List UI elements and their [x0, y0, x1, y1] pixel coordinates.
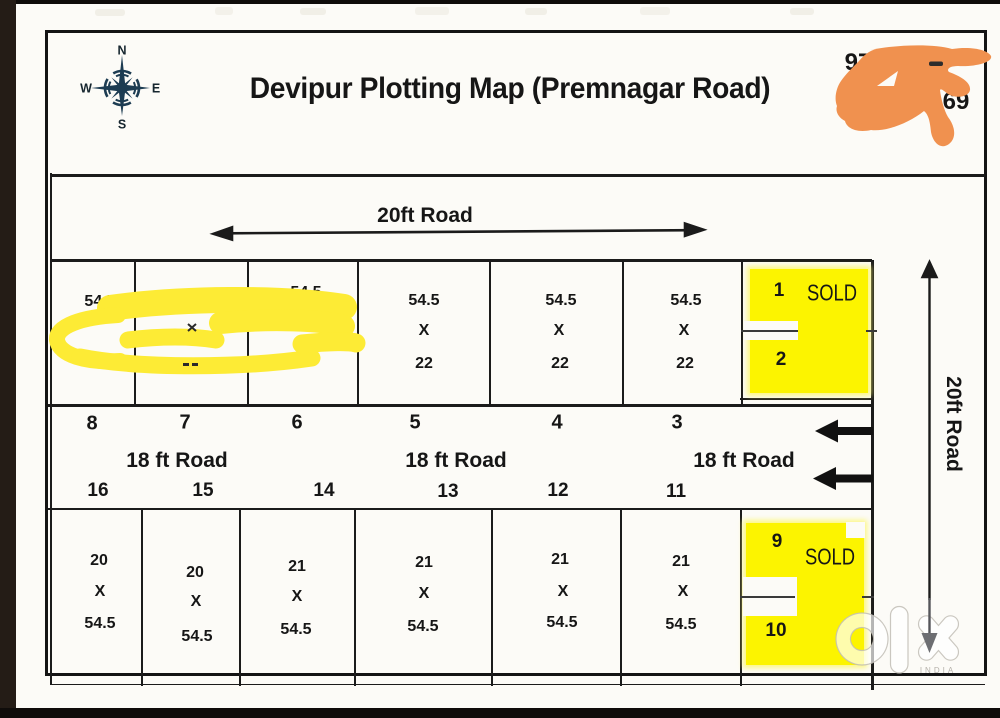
svg-text:N: N	[117, 44, 126, 58]
svg-text:INDIA: INDIA	[920, 666, 956, 675]
svg-text:W: W	[80, 82, 92, 96]
svg-text:S: S	[118, 118, 126, 132]
svg-text:E: E	[152, 82, 160, 96]
